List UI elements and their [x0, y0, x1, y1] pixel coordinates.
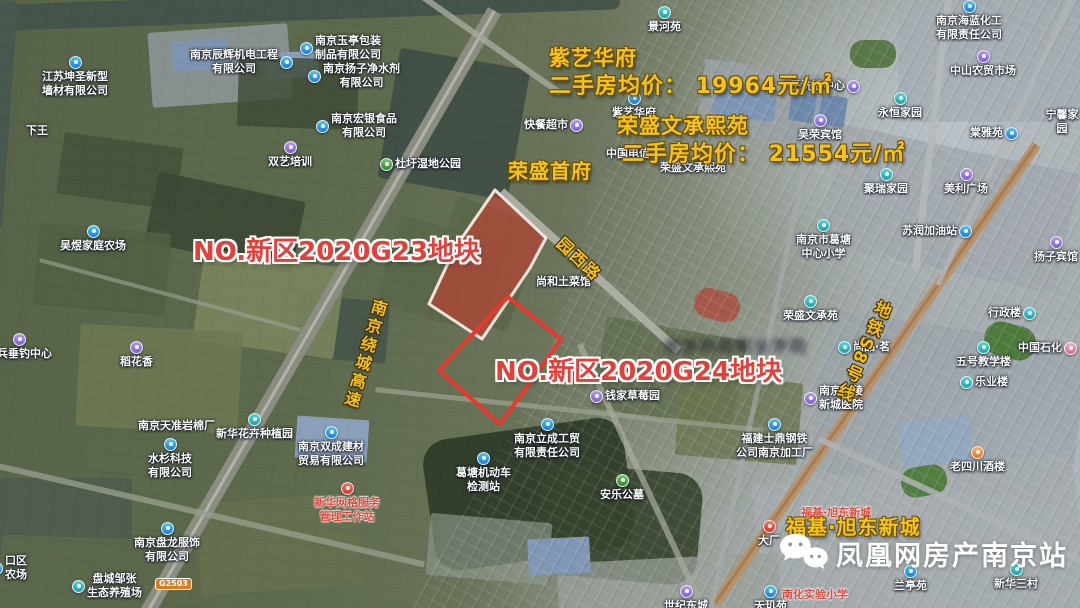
road-name-label: 园西路	[552, 231, 608, 285]
price-annotation: 二手房均价： 19964元/㎡	[549, 68, 832, 100]
parcel-label: NO.新区2020G24地块	[495, 351, 782, 388]
price-annotation: 荣盛首府	[508, 155, 592, 184]
annotation-layer: NO.新区2020G23地块NO.新区2020G24地块紫艺华府二手房均价： 1…	[0, 0, 1080, 608]
road-name-label: 南京绕城高速	[337, 296, 391, 412]
price-annotation: 二手房均价： 21554元/㎡	[622, 136, 905, 168]
brand-watermark: 凤凰网房产南京站	[778, 532, 1068, 574]
wechat-icon	[778, 532, 828, 574]
brand-text: 凤凰网房产南京站	[836, 534, 1068, 573]
road-name-label: 地铁S8号线	[829, 296, 897, 407]
parcel-label: NO.新区2020G23地块	[193, 231, 480, 268]
satellite-map: 南京科技职业学院 景河苑南京海蓝化工 有限责任公司中山农贸市场永恒家园棠雅苑宁馨…	[0, 0, 1080, 608]
